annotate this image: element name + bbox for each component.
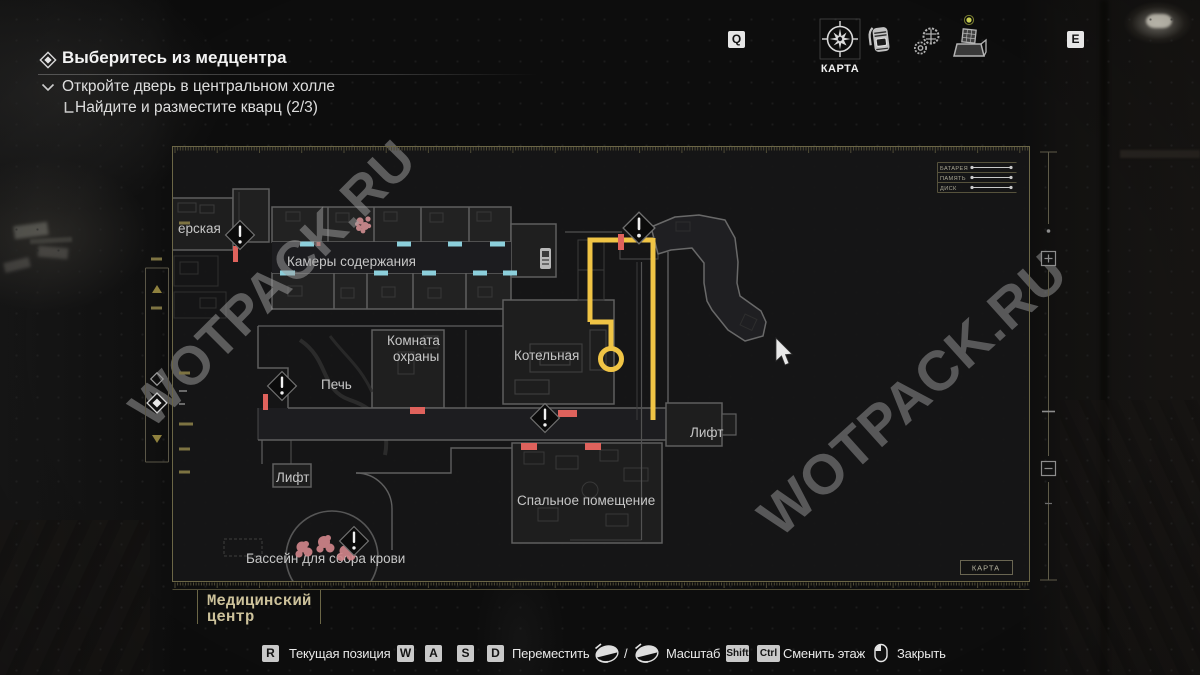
svg-text:Спальное помещение: Спальное помещение: [517, 493, 655, 508]
svg-text:центр: центр: [207, 608, 255, 626]
svg-text:Бассейн для сбора крови: Бассейн для сбора крови: [246, 551, 405, 566]
svg-text:охраны: охраны: [393, 349, 439, 364]
svg-text:БАТАРЕЯ: БАТАРЕЯ: [940, 166, 968, 172]
svg-text:ПАМЯТЬ: ПАМЯТЬ: [940, 176, 966, 182]
svg-text:КАРТА: КАРТА: [972, 564, 1000, 573]
svg-text:Комната: Комната: [387, 333, 440, 348]
svg-text:Лифт: Лифт: [276, 470, 309, 485]
svg-text:ДИСК: ДИСК: [940, 186, 957, 192]
svg-text:Котельная: Котельная: [514, 348, 579, 363]
svg-text:Лифт: Лифт: [690, 425, 723, 440]
svg-text:Печь: Печь: [321, 377, 352, 392]
